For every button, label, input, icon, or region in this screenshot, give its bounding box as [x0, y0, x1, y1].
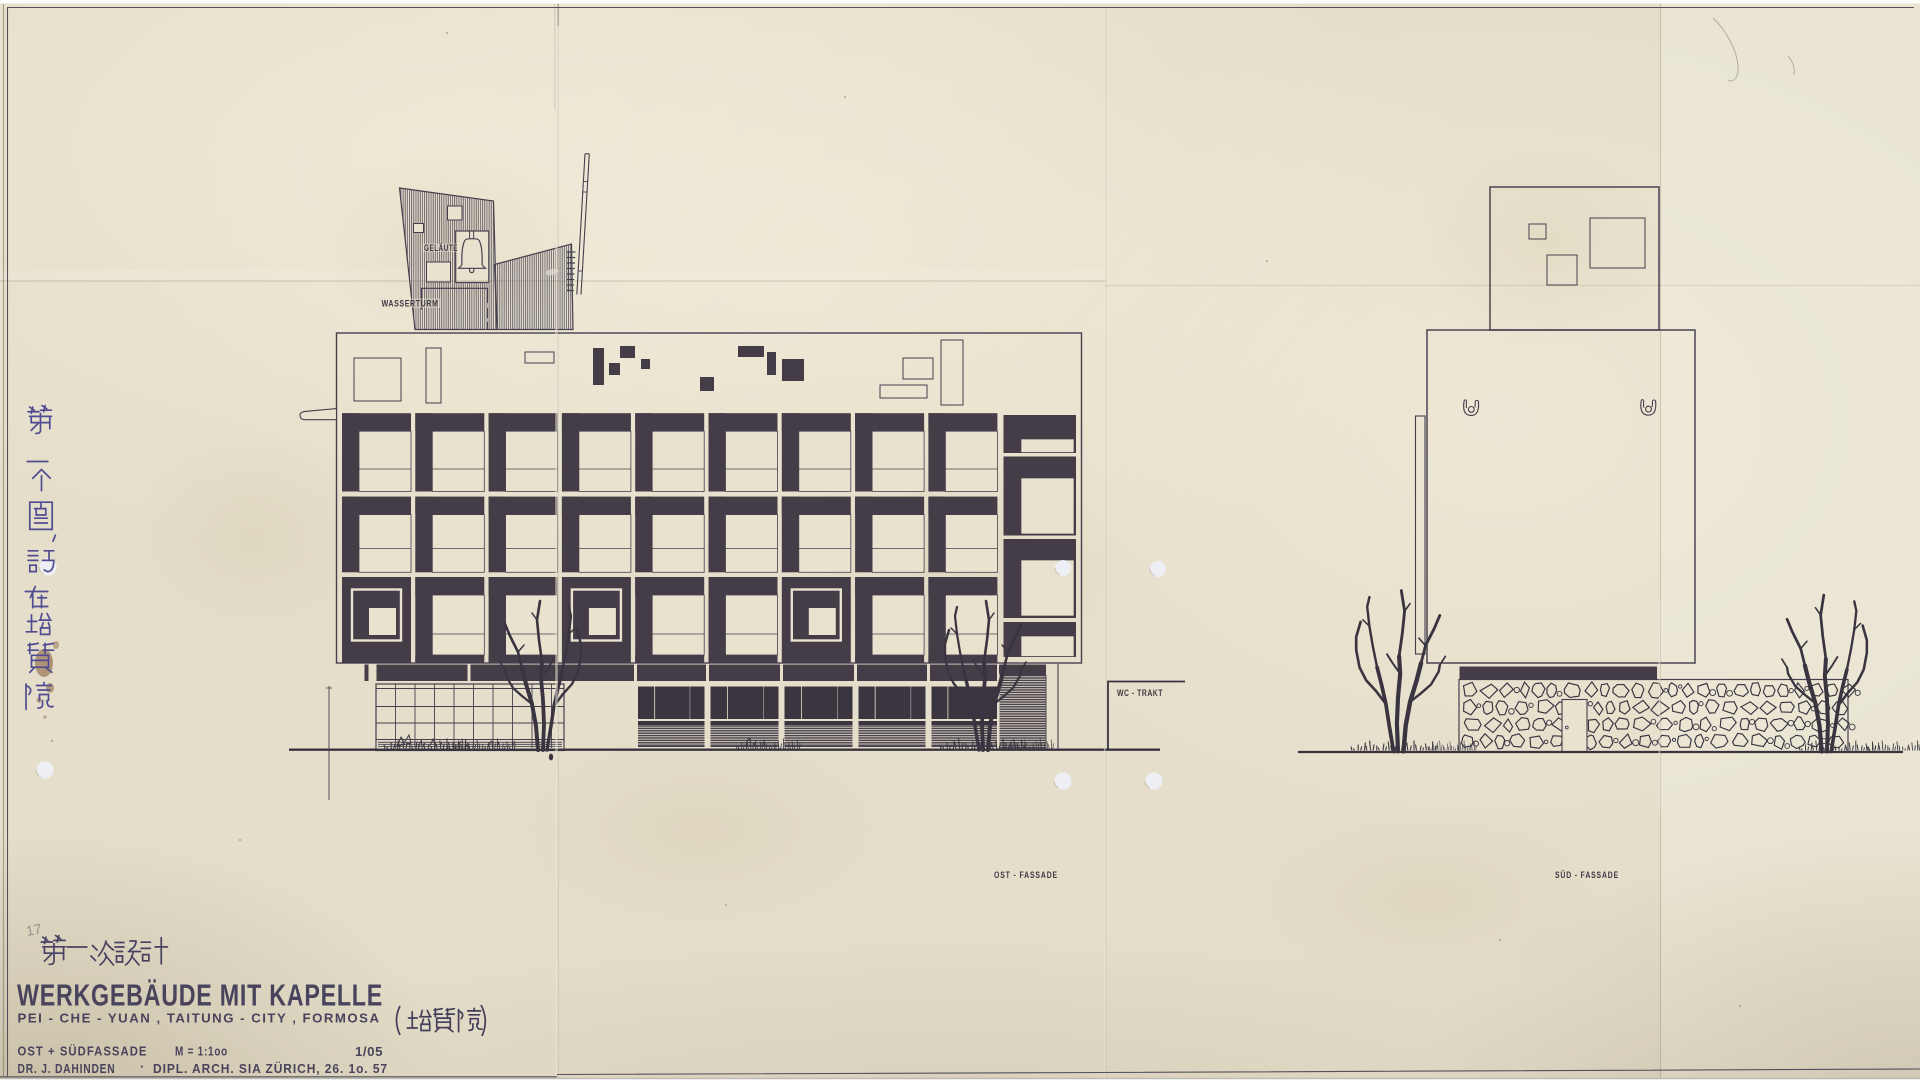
svg-text:DIPL. ARCH. SIA ZÜRICH, 26. 1o: DIPL. ARCH. SIA ZÜRICH, 26. 1o. 57 [153, 1061, 388, 1076]
svg-text:WASSERTURM: WASSERTURM [382, 299, 439, 309]
svg-text:DR. J. DAHINDEN: DR. J. DAHINDEN [18, 1061, 116, 1076]
svg-text:GELÄUTE: GELÄUTE [424, 243, 458, 253]
svg-text:OST - FASSADE: OST - FASSADE [994, 870, 1058, 881]
svg-text:WC - TRAKT: WC - TRAKT [1117, 688, 1163, 698]
svg-text:PEI - CHE - YUAN , TAITUNG - C: PEI - CHE - YUAN , TAITUNG - CITY , FORM… [18, 1011, 381, 1026]
svg-text:WERKGEBÄUDE MIT KAPELLE: WERKGEBÄUDE MIT KAPELLE [17, 978, 383, 1013]
svg-text:OST + SÜDFASSADE: OST + SÜDFASSADE [18, 1044, 148, 1059]
svg-text:1/05: 1/05 [355, 1044, 383, 1059]
svg-text:17: 17 [25, 920, 43, 938]
svg-text:M = 1:1oo: M = 1:1oo [175, 1044, 228, 1059]
svg-text:·: · [140, 1059, 144, 1074]
svg-text:SÜD - FASSADE: SÜD - FASSADE [1555, 870, 1619, 881]
